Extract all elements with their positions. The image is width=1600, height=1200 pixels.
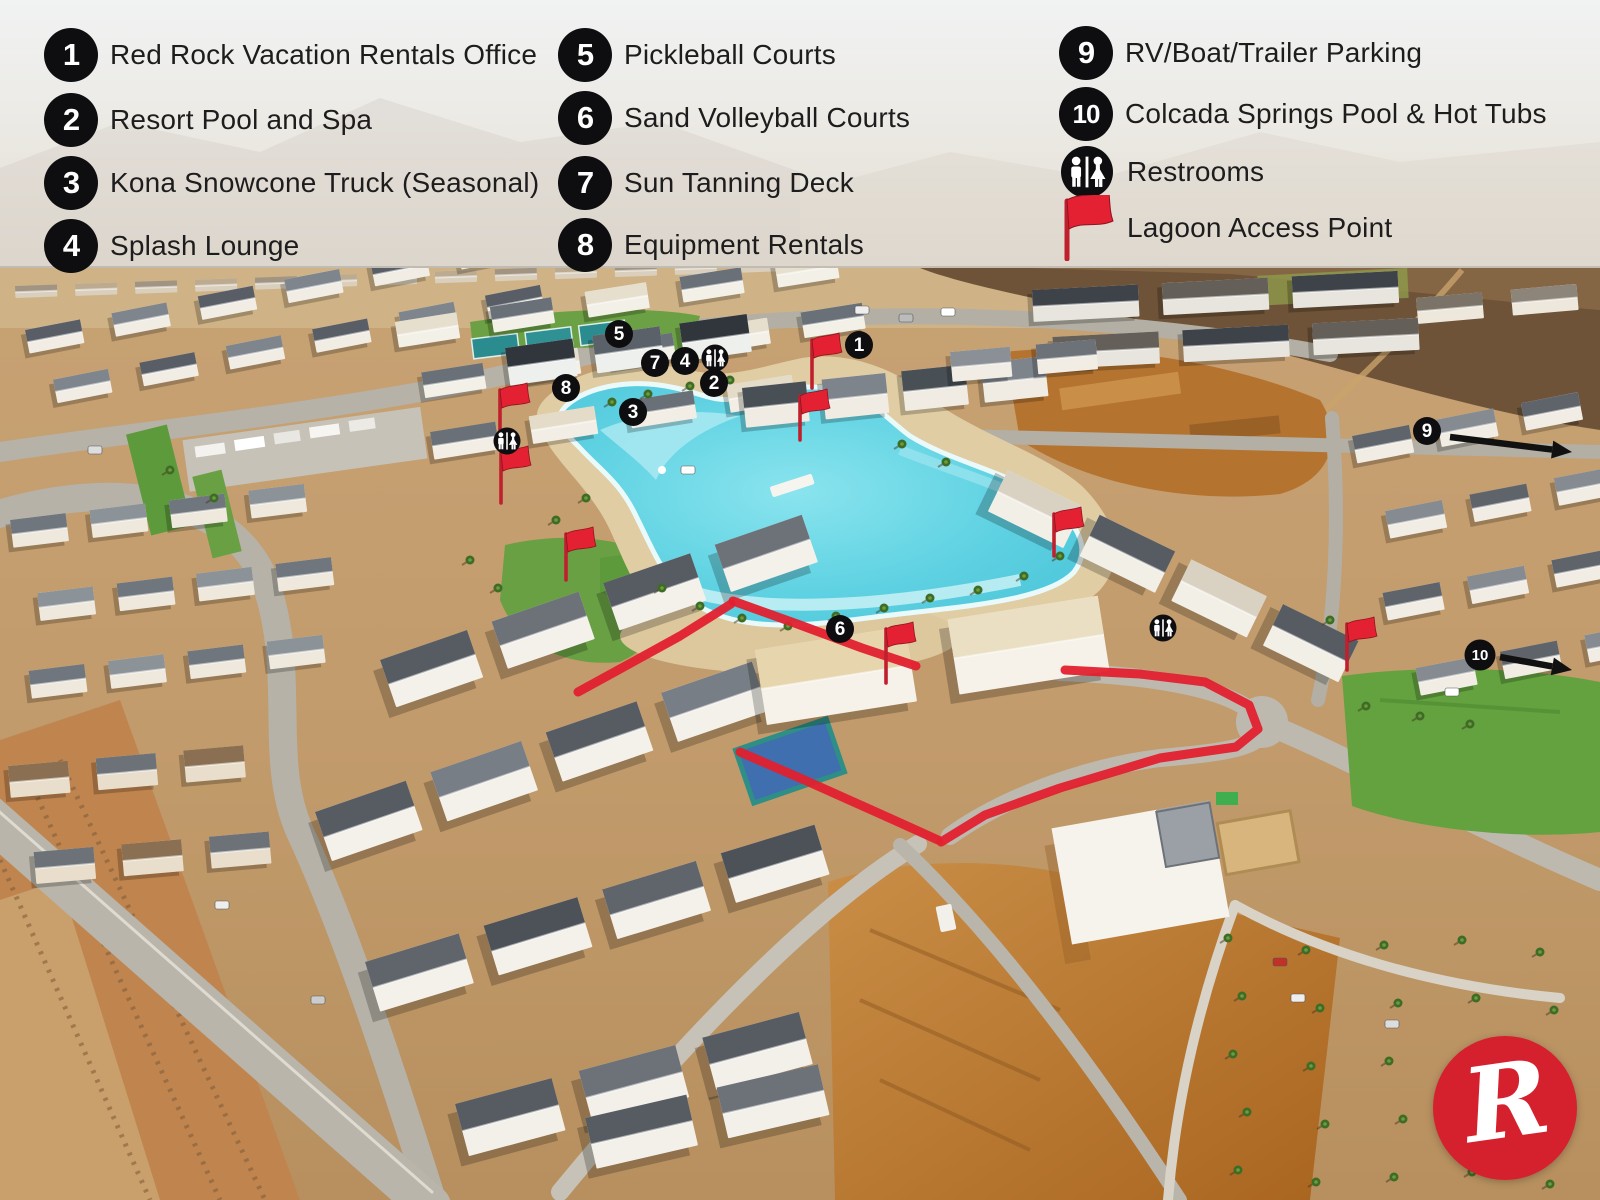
- legend-label: Equipment Rentals: [624, 229, 864, 261]
- brand-logo: R: [1433, 1036, 1577, 1180]
- legend-item-4: 4Splash Lounge: [44, 218, 299, 274]
- map-marker-4: 4: [671, 347, 699, 375]
- legend-marker-6: 6: [558, 91, 612, 145]
- svg-text:7: 7: [650, 353, 661, 374]
- legend-label: Lagoon Access Point: [1127, 212, 1392, 244]
- car: [311, 996, 325, 1004]
- car: [1291, 994, 1305, 1002]
- restroom-marker: [702, 345, 729, 372]
- car: [899, 314, 913, 322]
- map-marker-1: 1: [845, 331, 873, 359]
- car: [215, 901, 229, 909]
- map-marker-2: 2: [700, 369, 728, 397]
- svg-text:8: 8: [561, 378, 572, 399]
- legend-item-6: 6Sand Volleyball Courts: [558, 90, 910, 146]
- flag-icon: [1059, 196, 1115, 260]
- legend-marker-3: 3: [44, 156, 98, 210]
- restroom-marker: [494, 428, 521, 455]
- car: [1273, 958, 1287, 966]
- legend-marker-8: 8: [558, 218, 612, 272]
- svg-text:2: 2: [709, 373, 720, 394]
- car: [1385, 1020, 1399, 1028]
- car: [855, 306, 869, 314]
- svg-text:6: 6: [835, 619, 846, 640]
- svg-text:9: 9: [1422, 421, 1433, 442]
- legend-label: Colcada Springs Pool & Hot Tubs: [1125, 98, 1547, 130]
- legend-item-2: 2Resort Pool and Spa: [44, 92, 372, 148]
- map-marker-10: 10: [1465, 640, 1496, 671]
- legend-label: Resort Pool and Spa: [110, 104, 372, 136]
- legend-label: Red Rock Vacation Rentals Office: [110, 39, 537, 71]
- map-marker-6: 6: [826, 615, 854, 643]
- legend-item-9: 9RV/Boat/Trailer Parking: [1059, 25, 1422, 81]
- map-marker-3: 3: [619, 398, 647, 426]
- legend-item-7: 7Sun Tanning Deck: [558, 155, 854, 211]
- legend-label: Kona Snowcone Truck (Seasonal): [110, 167, 539, 199]
- legend-label: Pickleball Courts: [624, 39, 836, 71]
- svg-text:1: 1: [854, 335, 865, 356]
- legend-item-8: 8Equipment Rentals: [558, 217, 864, 273]
- restroom-marker: [1150, 615, 1177, 642]
- car: [681, 466, 695, 474]
- svg-text:4: 4: [680, 351, 691, 372]
- legend-item-10: 10Colcada Springs Pool & Hot Tubs: [1059, 86, 1547, 142]
- car: [941, 308, 955, 316]
- car: [1445, 688, 1459, 696]
- legend-marker-2: 2: [44, 93, 98, 147]
- map-marker-7: 7: [641, 349, 669, 377]
- legend-marker-4: 4: [44, 219, 98, 273]
- resort-map-infographic: 12345678910 1Red Rock Vacation Rentals O…: [0, 0, 1600, 1200]
- svg-text:3: 3: [628, 402, 639, 423]
- legend-marker-10: 10: [1059, 87, 1113, 141]
- brand-logo-letter: R: [1457, 1045, 1555, 1158]
- legend-item-lagoon-access: Lagoon Access Point: [1059, 200, 1392, 256]
- map-marker-9: 9: [1413, 417, 1441, 445]
- legend-marker-1: 1: [44, 28, 98, 82]
- svg-text:5: 5: [614, 324, 625, 345]
- map-marker-5: 5: [605, 320, 633, 348]
- legend-label: Splash Lounge: [110, 230, 299, 262]
- legend-item-restrooms: Restrooms: [1059, 144, 1264, 200]
- legend-label: RV/Boat/Trailer Parking: [1125, 37, 1422, 69]
- legend-marker-5: 5: [558, 28, 612, 82]
- svg-text:10: 10: [1472, 647, 1489, 664]
- car: [88, 446, 102, 454]
- legend-label: Sand Volleyball Courts: [624, 102, 910, 134]
- legend-label: Sun Tanning Deck: [624, 167, 854, 199]
- legend-item-1: 1Red Rock Vacation Rentals Office: [44, 27, 537, 83]
- legend-marker-7: 7: [558, 156, 612, 210]
- legend-item-3: 3Kona Snowcone Truck (Seasonal): [44, 155, 539, 211]
- legend-marker-9: 9: [1059, 26, 1113, 80]
- legend-item-5: 5Pickleball Courts: [558, 27, 836, 83]
- map-marker-8: 8: [552, 374, 580, 402]
- legend-label: Restrooms: [1127, 156, 1264, 188]
